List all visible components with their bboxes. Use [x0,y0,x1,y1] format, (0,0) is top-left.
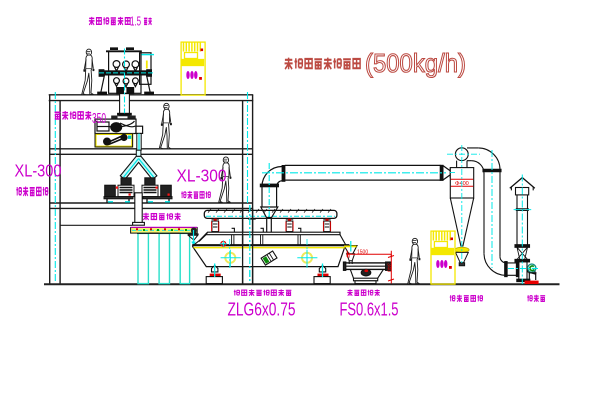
svg-text:1.5: 1.5 [130,15,141,29]
svg-text:340: 340 [386,263,392,272]
svg-text:XL-300: XL-300 [15,161,62,181]
svg-text:XL-300: XL-300 [177,166,227,186]
svg-text:350: 350 [92,110,106,127]
svg-text:(500kg/h): (500kg/h) [365,48,466,78]
svg-text:1500: 1500 [357,249,368,255]
svg-text:ZLG6x0.75: ZLG6x0.75 [228,299,296,320]
svg-text:FS0.6x1.5: FS0.6x1.5 [340,299,399,320]
